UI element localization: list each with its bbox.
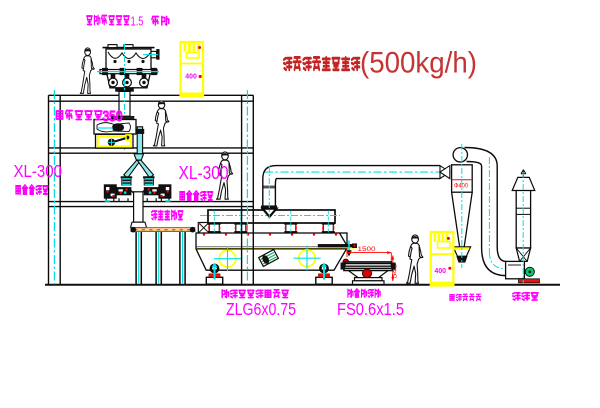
svg-text:XL-300: XL-300 <box>179 163 229 183</box>
svg-text:XL-300: XL-300 <box>14 161 63 181</box>
svg-text:ZLG6x0.75: ZLG6x0.75 <box>226 299 296 319</box>
svg-text:FS0.6x1.5: FS0.6x1.5 <box>337 299 404 319</box>
svg-text:350: 350 <box>103 109 123 125</box>
svg-text:1500: 1500 <box>358 246 377 253</box>
svg-text:400: 400 <box>185 74 197 81</box>
svg-text:Φ400: Φ400 <box>454 183 469 190</box>
svg-text:(500kg/h): (500kg/h) <box>360 47 477 80</box>
svg-text:1.5: 1.5 <box>131 14 144 29</box>
svg-text:400: 400 <box>435 268 447 275</box>
